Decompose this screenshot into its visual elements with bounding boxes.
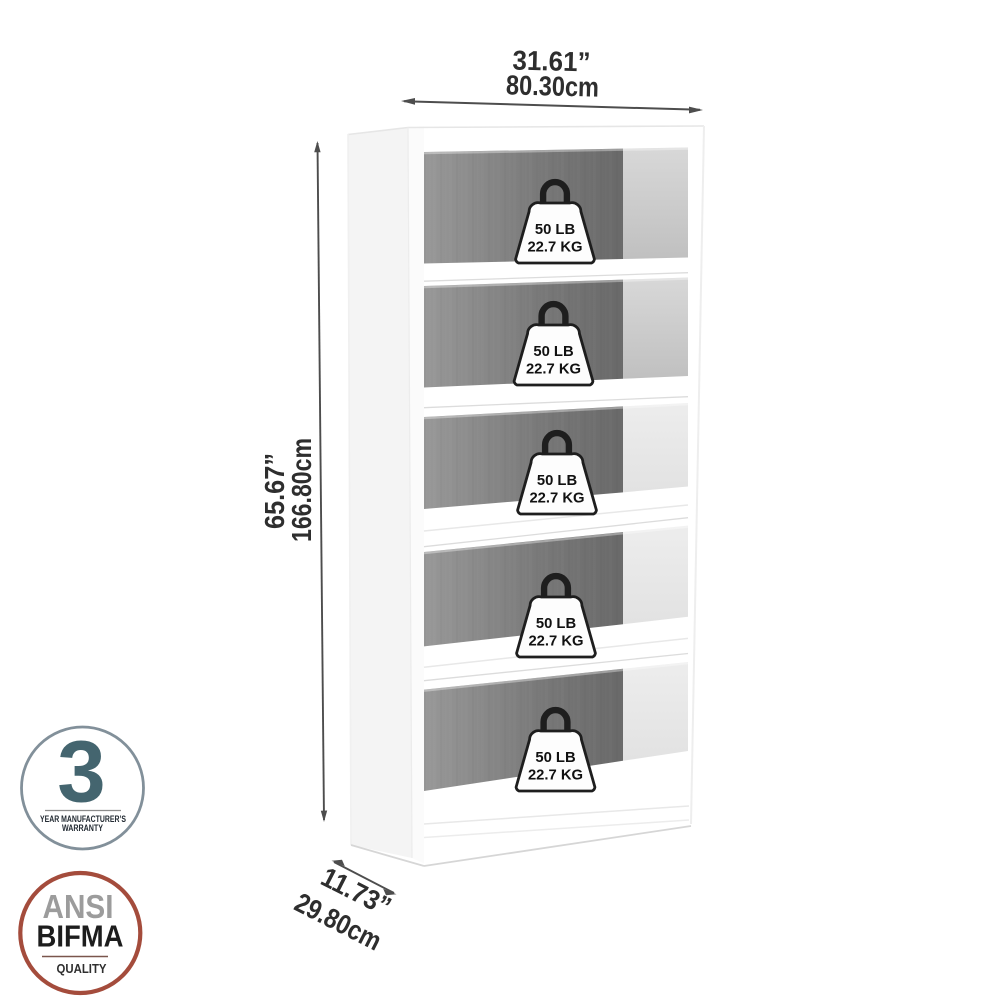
svg-text:WARRANTY: WARRANTY: [62, 823, 103, 833]
svg-text:BIFMA: BIFMA: [37, 919, 124, 954]
svg-text:80.30cm: 80.30cm: [506, 69, 600, 102]
svg-text:166.80cm: 166.80cm: [286, 438, 317, 542]
svg-text:3: 3: [57, 724, 105, 821]
svg-text:QUALITY: QUALITY: [57, 962, 108, 976]
